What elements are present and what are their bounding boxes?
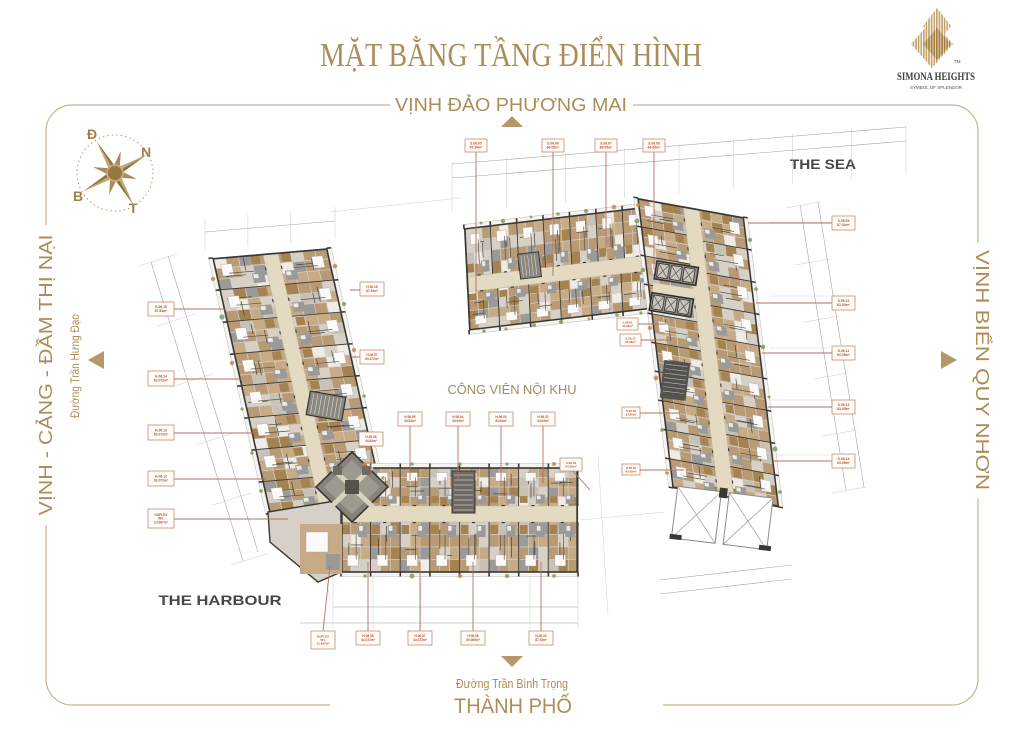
svg-text:44.94m²: 44.94m² [495,419,507,423]
svg-text:Đường Trần Bình Trọng: Đường Trần Bình Trọng [456,676,568,691]
svg-text:23.697m²: 23.697m² [154,520,168,524]
svg-text:69.05m²: 69.05m² [600,146,613,150]
svg-text:63.05m²: 63.05m² [837,461,850,465]
svg-text:44.25m²: 44.25m² [622,324,633,328]
svg-text:44.94m²: 44.94m² [452,419,464,423]
svg-text:Đ: Đ [87,126,97,142]
svg-text:64.05m²: 64.05m² [565,464,576,468]
svg-text:63.85m²: 63.85m² [626,412,637,416]
svg-text:63.072m²: 63.072m² [154,379,169,383]
svg-text:44.84m²: 44.84m² [365,439,377,443]
svg-text:87.54m²: 87.54m² [366,289,378,293]
svg-text:63.48m²: 63.48m² [625,340,636,344]
svg-text:T: T [129,200,138,216]
svg-text:63.072m²: 63.072m² [154,479,169,483]
svg-text:TM: TM [954,59,961,64]
svg-text:69.05m²: 69.05m² [547,146,560,150]
svg-text:Đường Trần Hưng Đạo: Đường Trần Hưng Đạo [68,314,82,418]
svg-text:CÔNG VIÊN NỘI KHU: CÔNG VIÊN NỘI KHU [448,382,577,397]
svg-text:44.94m²: 44.94m² [537,419,549,423]
svg-text:63.05m²: 63.05m² [626,469,637,473]
svg-text:64.65m²: 64.65m² [648,146,661,150]
svg-text:87.54m²: 87.54m² [470,146,483,150]
svg-text:43.072m²: 43.072m² [413,638,427,642]
svg-text:63.072m²: 63.072m² [365,357,379,361]
svg-text:87.53m²: 87.53m² [535,638,547,642]
svg-text:43.072m²: 43.072m² [361,638,375,642]
svg-text:THÀNH PHỐ: THÀNH PHỐ [454,694,572,718]
svg-text:THE HARBOUR: THE HARBOUR [159,592,282,608]
svg-text:VỊNH ĐẢO PHƯƠNG MAI: VỊNH ĐẢO PHƯƠNG MAI [395,94,627,115]
svg-text:VỊNH BIỂN QUY NHƠN: VỊNH BIỂN QUY NHƠN [972,250,993,490]
svg-text:SIMONA HEIGHTS: SIMONA HEIGHTS [897,69,975,83]
svg-text:SYMBOL OF SPLENDOR: SYMBOL OF SPLENDOR [910,85,963,90]
svg-text:63.05m²: 63.05m² [837,303,850,307]
svg-text:MẶT BẰNG TẦNG ĐIỂN HÌNH: MẶT BẰNG TẦNG ĐIỂN HÌNH [320,36,702,74]
svg-text:63.05m²: 63.05m² [837,407,850,411]
svg-text:N: N [141,144,151,160]
svg-text:87.53m²: 87.53m² [155,309,168,313]
svg-text:21.697m²: 21.697m² [317,642,330,646]
svg-text:50.065m²: 50.065m² [466,638,480,642]
svg-text:VỊNH - CẢNG - ĐẦM THỊ NẠI: VỊNH - CẢNG - ĐẦM THỊ NẠI [35,235,56,516]
svg-text:63.05m²: 63.05m² [837,353,850,357]
svg-text:87.54m²: 87.54m² [837,223,850,227]
svg-text:THE SEA: THE SEA [790,156,856,172]
svg-text:B: B [73,188,83,204]
svg-text:63.072m²: 63.072m² [154,433,169,437]
svg-text:44.94m²: 44.94m² [404,419,416,423]
